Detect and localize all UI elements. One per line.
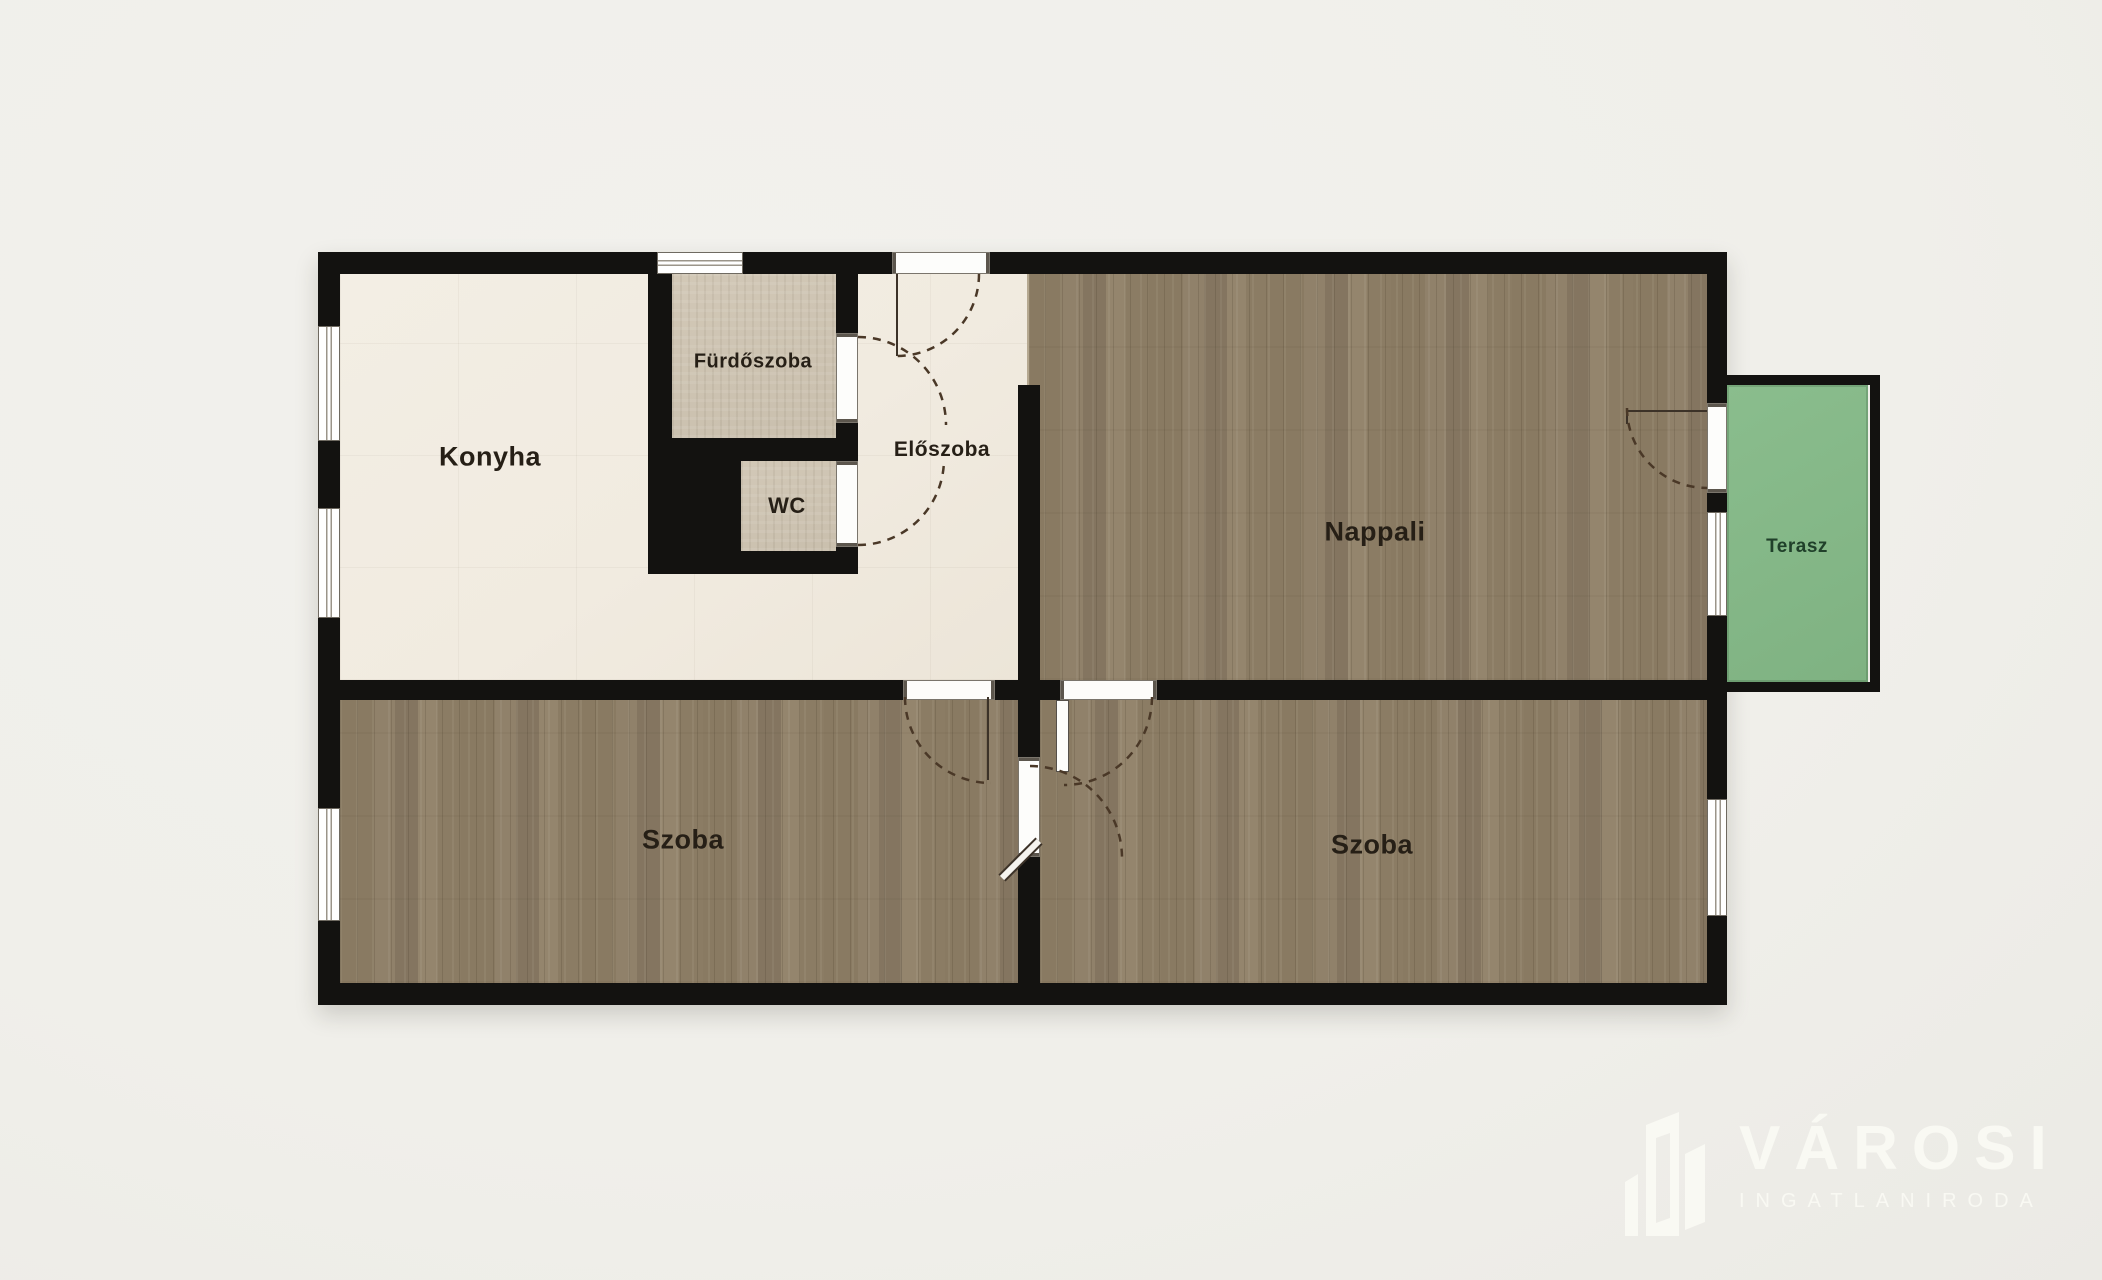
room-label-wc: WC — [768, 493, 806, 519]
entrance-door — [892, 252, 990, 274]
room-label-nappali: Nappali — [1324, 517, 1425, 548]
bedrooms-connecting-door — [1018, 757, 1040, 857]
bedroom-right-door-leaf — [1056, 700, 1069, 772]
living-room-window — [1707, 512, 1727, 616]
terrace-wall-top — [1727, 375, 1880, 385]
varosi-logo-icon — [1625, 1112, 1713, 1240]
terrace-door — [1707, 403, 1727, 493]
room-label-szoba-right: Szoba — [1331, 830, 1413, 861]
hall-living-wall — [1018, 385, 1040, 700]
floorplan-canvas: Konyha Fürdőszoba WC Előszoba Nappali Te… — [0, 0, 2102, 1280]
room-label-eloszoba: Előszoba — [894, 438, 990, 462]
bedroom-right-window — [1707, 799, 1727, 916]
terrace-floor — [1727, 385, 1868, 682]
hall-living-passage-line — [1027, 273, 1029, 385]
kitchen-window-upper — [318, 326, 340, 441]
wc-door — [836, 461, 858, 547]
room-label-szoba-left: Szoba — [642, 825, 724, 856]
room-label-konyha: Konyha — [439, 442, 541, 473]
agency-name: VÁROSI — [1739, 1118, 2061, 1180]
outer-wall-top — [318, 252, 1727, 274]
agency-watermark-text: VÁROSI INGATLANIRODA — [1739, 1112, 2061, 1213]
bedroom-left-window — [318, 808, 340, 921]
bedroom-left-door — [903, 680, 995, 700]
bathroom-top-window — [657, 252, 743, 274]
agency-subtitle: INGATLANIRODA — [1739, 1190, 2061, 1213]
terrace-wall-right — [1870, 375, 1880, 692]
terrace-wall-bottom — [1727, 682, 1880, 692]
outer-wall-bottom — [318, 983, 1727, 1005]
bathroom-door — [836, 333, 858, 423]
bedroom-right-door — [1060, 680, 1157, 700]
living-room-floor — [1028, 273, 1707, 680]
kitchen-window-lower — [318, 508, 340, 618]
room-label-furdoszoba: Fürdőszoba — [694, 351, 812, 374]
agency-watermark: VÁROSI INGATLANIRODA — [1625, 1112, 2085, 1252]
room-label-terasz: Terasz — [1766, 536, 1828, 558]
